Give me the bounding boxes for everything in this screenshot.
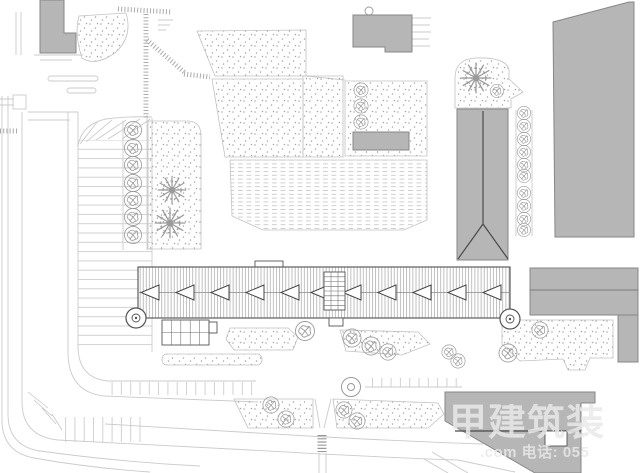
entrance-lines (28, 112, 78, 120)
traffic-island-1 (48, 76, 98, 81)
planting-center-north (197, 30, 306, 76)
hatched-ramp (147, 40, 184, 72)
hall-end-column-east (500, 309, 520, 329)
south-footpath (319, 453, 326, 473)
traffic-island-2 (67, 88, 96, 93)
lawn-center (230, 160, 427, 230)
planting-center-mid (303, 76, 343, 157)
planting-teardrop-nw (77, 13, 128, 61)
roundabout-circle (342, 378, 361, 397)
planting-se (502, 320, 613, 370)
building-se (445, 392, 595, 473)
parking-stalls-center (366, 378, 460, 387)
planting-south-1 (234, 399, 313, 428)
north-road-stub (16, 12, 21, 55)
parking-stalls-south-outer (58, 417, 142, 442)
gate-box (13, 95, 26, 109)
planting-strip-1 (226, 328, 298, 350)
site-plan-drawing (0, 0, 640, 473)
small-steps (158, 20, 173, 30)
stall-fan-corner (28, 392, 62, 430)
building-east-mid (530, 268, 638, 315)
chimney-circle (365, 7, 373, 15)
planting-arch-ne (455, 58, 523, 108)
building-ne-large (553, 2, 634, 237)
hatched-walk (184, 74, 210, 77)
building-se-notch (545, 431, 567, 446)
planting-areas (77, 13, 613, 428)
misc-road-marks (0, 55, 83, 105)
annex-grid-building (162, 320, 217, 345)
parking-stalls-south-inner (108, 382, 256, 395)
hall-end-column-west (126, 308, 146, 328)
building-small-center (353, 132, 409, 150)
building-east-mid-wing (618, 315, 638, 362)
planting-bed (162, 354, 262, 365)
planting-gap-path (315, 399, 331, 428)
hall-roof-bump (255, 261, 283, 267)
central-hall (126, 261, 520, 397)
site-plan-canvas: 甲建筑装 .com 电话: 055 (0, 0, 640, 473)
planting-center-west (212, 79, 303, 157)
steps-east-of-building (412, 18, 431, 46)
building-nw-l-shape (40, 0, 76, 53)
road-branch-lines (424, 452, 468, 473)
hatched-wall-north (118, 9, 172, 12)
stair-landing (329, 318, 343, 326)
building-north-center (353, 15, 412, 52)
